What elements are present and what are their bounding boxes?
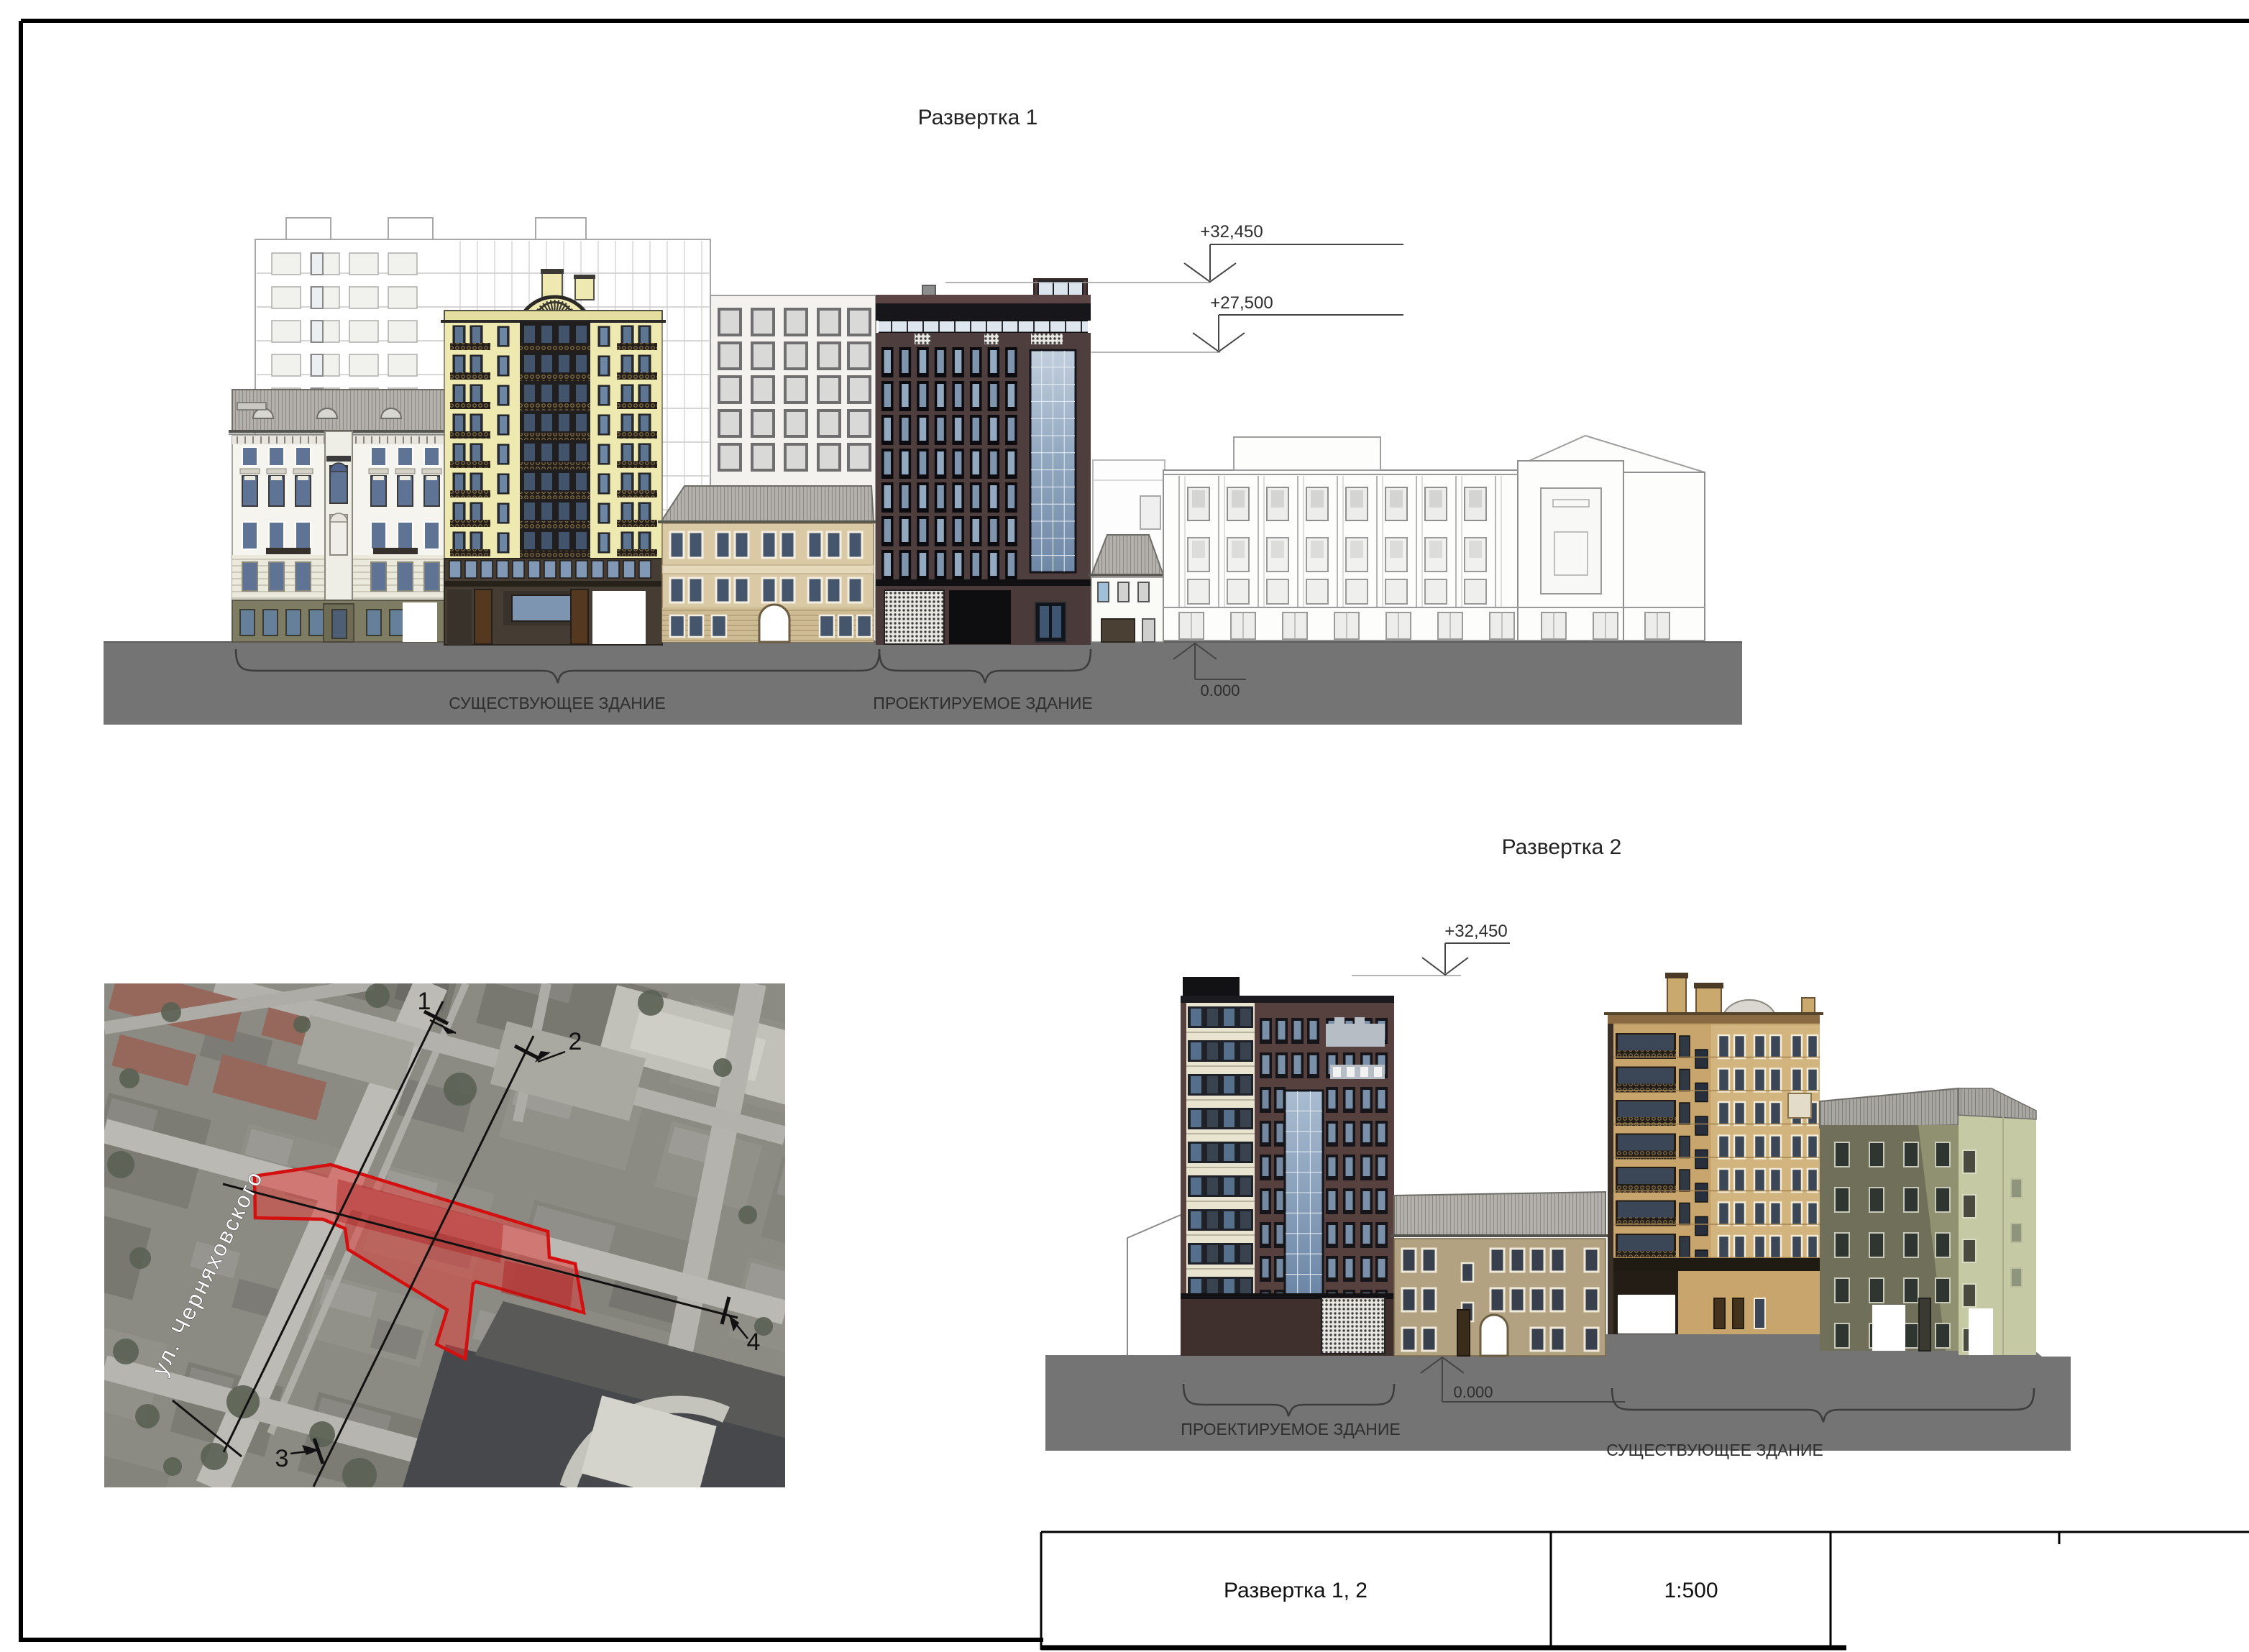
svg-text:0.000: 0.000	[1453, 1383, 1493, 1401]
svg-text:ПРОЕКТИРУЕМОЕ ЗДАНИЕ: ПРОЕКТИРУЕМОЕ ЗДАНИЕ	[873, 694, 1092, 712]
svg-text:3: 3	[275, 1445, 289, 1472]
svg-text:Развертка 1: Развертка 1	[918, 106, 1038, 129]
svg-text:1:500: 1:500	[1664, 1579, 1718, 1602]
svg-text:2: 2	[569, 1028, 582, 1055]
svg-text:4: 4	[747, 1329, 761, 1356]
svg-text:ПРОЕКТИРУЕМОЕ ЗДАНИЕ: ПРОЕКТИРУЕМОЕ ЗДАНИЕ	[1181, 1420, 1400, 1438]
svg-text:+27,500: +27,500	[1210, 293, 1273, 313]
svg-text:Развертка 2: Развертка 2	[1502, 835, 1622, 859]
svg-text:СУЩЕСТВУЮЩЕЕ ЗДАНИЕ: СУЩЕСТВУЮЩЕЕ ЗДАНИЕ	[449, 694, 666, 712]
svg-text:1: 1	[418, 988, 431, 1015]
svg-text:СУЩЕСТВУЮЩЕЕ ЗДАНИЕ: СУЩЕСТВУЮЩЕЕ ЗДАНИЕ	[1606, 1441, 1823, 1459]
svg-text:0.000: 0.000	[1200, 682, 1240, 699]
svg-text:+32,450: +32,450	[1444, 922, 1507, 941]
svg-text:Развертка 1, 2: Развертка 1, 2	[1224, 1579, 1368, 1602]
svg-text:+32,450: +32,450	[1200, 222, 1263, 242]
